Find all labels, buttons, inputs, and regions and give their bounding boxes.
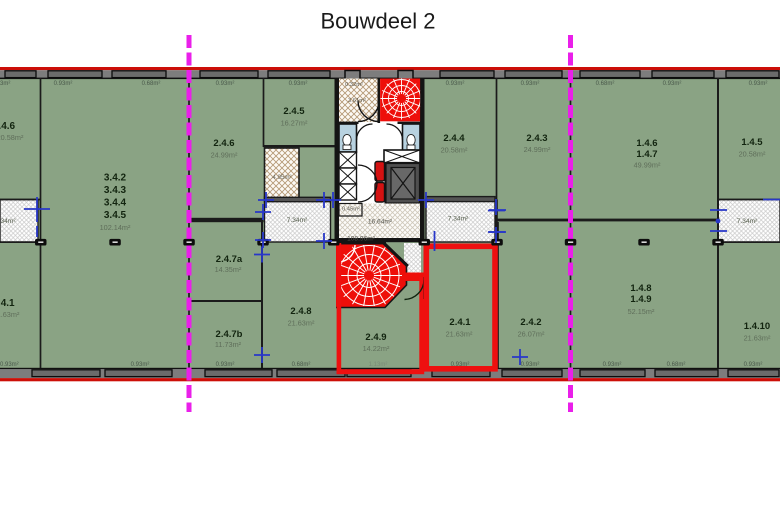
svg-text:21.63m²: 21.63m²	[288, 319, 315, 328]
svg-text:7.34m²: 7.34m²	[0, 218, 16, 225]
svg-text:0.93m²: 0.93m²	[54, 81, 73, 87]
svg-text:7.34m²: 7.34m²	[448, 216, 469, 223]
svg-text:0.93m²: 0.93m²	[216, 81, 235, 87]
svg-text:0.93m²: 0.93m²	[663, 81, 682, 87]
svg-text:21.63m²: 21.63m²	[744, 334, 771, 343]
svg-text:24.99m²: 24.99m²	[211, 151, 238, 160]
svg-text:0.93m²: 0.93m²	[216, 362, 235, 368]
svg-text:0.93m²: 0.93m²	[749, 81, 768, 87]
svg-text:1.4.7: 1.4.7	[636, 149, 657, 160]
svg-text:Bouwdeel 2: Bouwdeel 2	[321, 9, 436, 34]
svg-text:1.4.8: 1.4.8	[630, 283, 651, 294]
svg-text:3.4.2: 3.4.2	[104, 173, 127, 184]
svg-text:0.45m²: 0.45m²	[342, 207, 360, 213]
svg-text:0.93m²: 0.93m²	[451, 362, 470, 368]
svg-text:24.99m²: 24.99m²	[524, 145, 551, 154]
svg-text:14.22m²: 14.22m²	[363, 344, 390, 353]
svg-text:3.4.3: 3.4.3	[104, 185, 127, 196]
svg-text:0.93m²: 0.93m²	[131, 362, 150, 368]
svg-text:0.32m²: 0.32m²	[345, 82, 363, 88]
svg-text:49.99m²: 49.99m²	[634, 161, 661, 170]
svg-text:21.63m²: 21.63m²	[446, 330, 473, 339]
svg-text:1.4.6: 1.4.6	[636, 138, 657, 149]
svg-text:2.4.6: 2.4.6	[213, 138, 234, 149]
svg-text:14.35m²: 14.35m²	[215, 265, 242, 274]
svg-text:3.61m²: 3.61m²	[348, 98, 366, 104]
svg-text:21.63m²: 21.63m²	[0, 310, 20, 319]
svg-text:0.68m²: 0.68m²	[142, 81, 161, 87]
svg-text:0.93m²: 0.93m²	[521, 81, 540, 87]
svg-text:26.07m²: 26.07m²	[518, 330, 545, 339]
svg-text:2.4.9: 2.4.9	[365, 332, 386, 343]
svg-text:16.27m²: 16.27m²	[281, 119, 308, 128]
svg-text:3.4.4: 3.4.4	[104, 198, 127, 209]
svg-text:3.4.5: 3.4.5	[104, 210, 127, 221]
svg-text:0.93m²: 0.93m²	[603, 362, 622, 368]
svg-text:4.95m²: 4.95m²	[272, 174, 291, 181]
svg-text:7.34m²: 7.34m²	[287, 217, 308, 224]
svg-text:2.4.4: 2.4.4	[443, 133, 465, 144]
svg-text:20.58m²: 20.58m²	[0, 133, 24, 142]
svg-text:1.4.5: 1.4.5	[741, 137, 763, 148]
svg-text:0.68m²: 0.68m²	[596, 81, 615, 87]
svg-text:20.58m²: 20.58m²	[441, 146, 468, 155]
svg-text:2.4.3: 2.4.3	[526, 133, 547, 144]
svg-text:2.4.5: 2.4.5	[283, 106, 305, 117]
svg-text:7.34m²: 7.34m²	[737, 218, 758, 225]
svg-text:2.4.2: 2.4.2	[520, 317, 541, 328]
svg-text:0.93m²: 0.93m²	[744, 362, 763, 368]
svg-text:2.4.8: 2.4.8	[290, 306, 311, 317]
svg-text:102.14m²: 102.14m²	[100, 223, 131, 232]
svg-text:3.4.1: 3.4.1	[0, 298, 15, 309]
svg-text:1.4.10: 1.4.10	[744, 321, 770, 332]
svg-text:2.4.7b: 2.4.7b	[216, 329, 243, 340]
svg-text:108.96m²: 108.96m²	[347, 236, 376, 243]
svg-text:0.68m²: 0.68m²	[667, 362, 686, 368]
svg-text:3.4.6: 3.4.6	[0, 121, 16, 132]
svg-text:2.4.7a: 2.4.7a	[216, 254, 243, 265]
svg-text:52.15m²: 52.15m²	[628, 307, 655, 316]
svg-text:0.93m²: 0.93m²	[0, 362, 19, 368]
svg-text:1.4.9: 1.4.9	[630, 294, 651, 305]
svg-text:0.93m²: 0.93m²	[446, 81, 465, 87]
svg-text:20.58m²: 20.58m²	[739, 150, 766, 159]
svg-text:1.13m²: 1.13m²	[369, 362, 388, 368]
svg-text:0.93m²: 0.93m²	[521, 362, 540, 368]
svg-text:3m²: 3m²	[0, 81, 10, 87]
svg-text:11.73m²: 11.73m²	[215, 340, 242, 349]
svg-text:0.93m²: 0.93m²	[289, 81, 308, 87]
svg-text:0.68m²: 0.68m²	[292, 362, 311, 368]
svg-text:2.4.1: 2.4.1	[449, 317, 471, 328]
svg-text:16.64m²: 16.64m²	[368, 219, 393, 226]
